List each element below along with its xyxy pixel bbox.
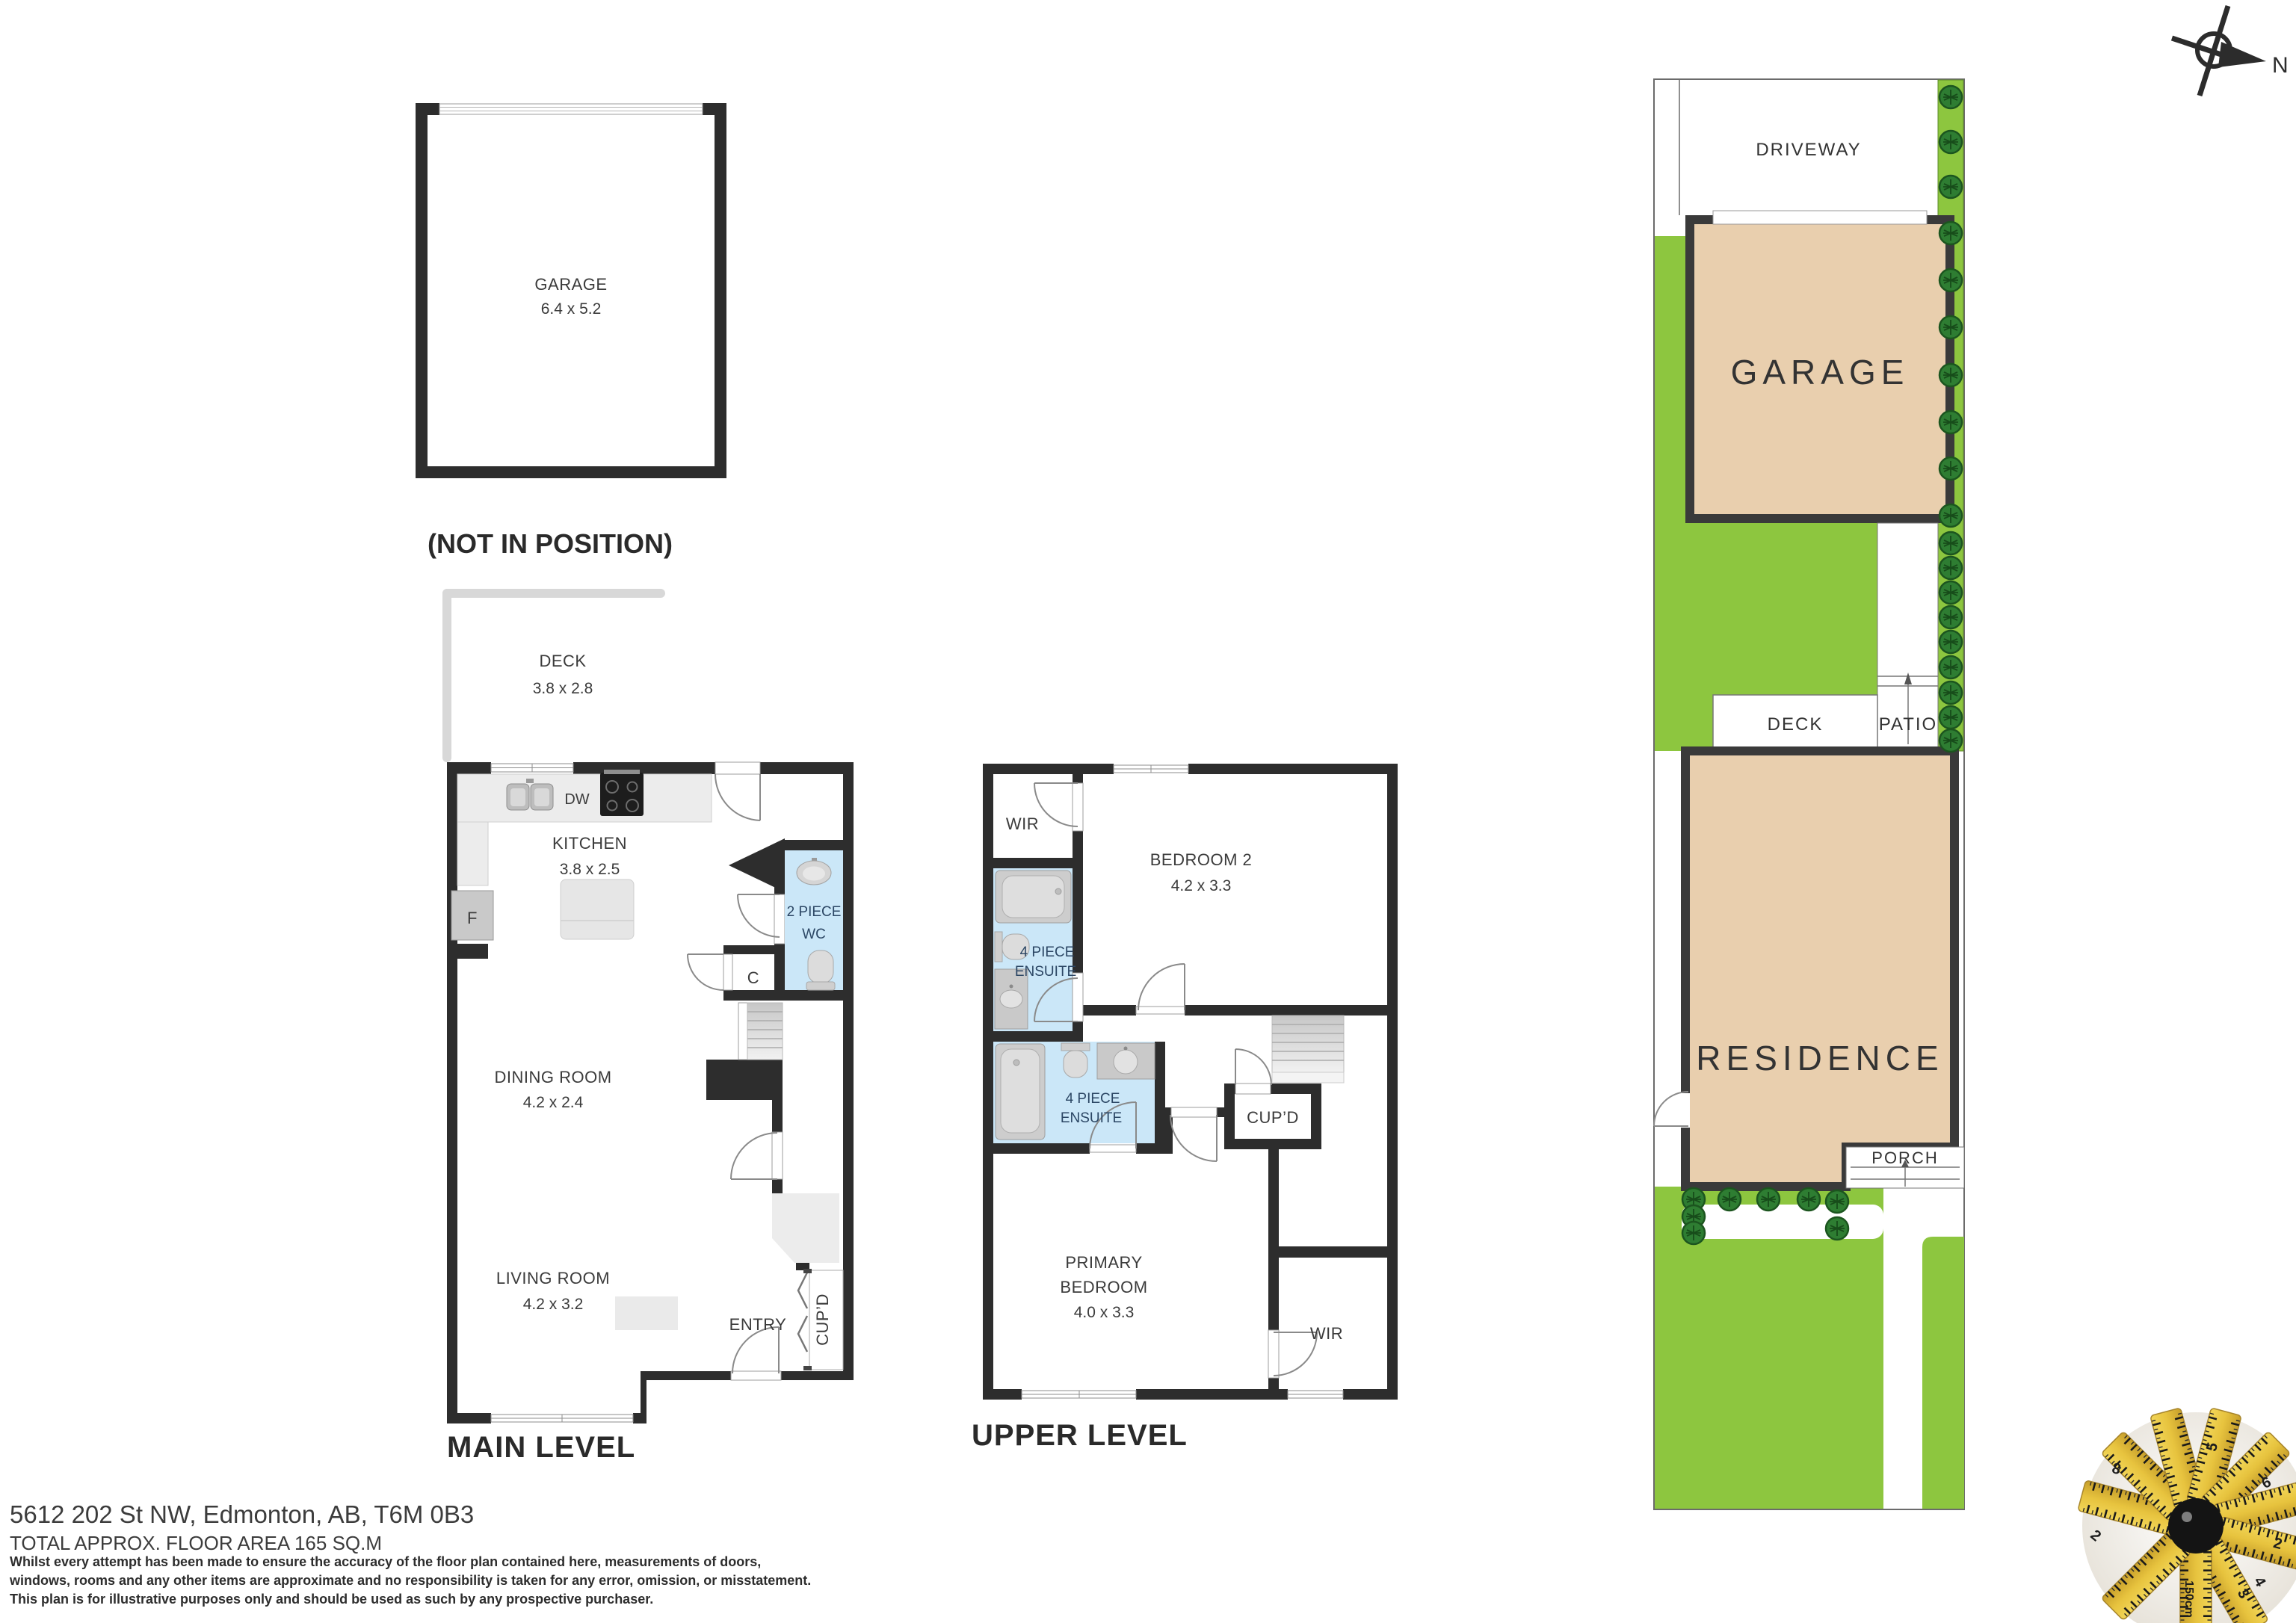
garage-door-band (439, 104, 703, 114)
floor-area-line: TOTAL APPROX. FLOOR AREA 165 SQ.M (10, 1532, 382, 1555)
fridge-label: F (467, 909, 478, 927)
bedroom2-label: BEDROOM 2 (1150, 850, 1253, 869)
ensuite1-label-1: 4 PIECE (1020, 945, 1075, 960)
primary-label-1: PRIMARY (1065, 1253, 1142, 1272)
upper-cupboard-label: CUP’D (1247, 1108, 1299, 1127)
wc-label-1: 2 PIECE (787, 904, 842, 920)
garage-note: (NOT IN POSITION) (428, 528, 673, 559)
wc-label-2: WC (802, 927, 826, 942)
entry-label: ENTRY (729, 1315, 787, 1334)
disclaimer-line-3: This plan is for illustrative purposes o… (10, 1592, 653, 1607)
living-dims: 4.2 x 3.2 (523, 1296, 584, 1313)
deck-label: DECK (539, 652, 586, 670)
primary-label-2: BEDROOM (1060, 1278, 1147, 1296)
tape-measure-logo: 8 2 6 5 2 3 4 150cm (2078, 1408, 2296, 1623)
upper-stairs (1272, 1015, 1344, 1083)
deck-dims: 3.8 x 2.8 (533, 680, 593, 697)
wc-toilet-icon (806, 950, 835, 990)
garage-plan-label: GARAGE (534, 275, 607, 294)
site-garage-label: GARAGE (1731, 353, 1910, 392)
ensuite2-tub-icon (996, 1044, 1045, 1140)
site-residence-label: RESIDENCE (1696, 1039, 1943, 1078)
site-porch-label: PORCH (1871, 1149, 1938, 1167)
garage-plan-dims: 6.4 x 5.2 (541, 300, 602, 318)
site-deck-label: DECK (1768, 714, 1824, 735)
main-level-title: MAIN LEVEL (447, 1431, 635, 1464)
dishwasher-label: DW (564, 791, 589, 808)
wir-top-label: WIR (1006, 814, 1039, 833)
ensuite2-label-2: ENSUITE (1061, 1110, 1122, 1126)
closet-label: C (747, 968, 759, 987)
disclaimer-line-2: windows, rooms and any other items are a… (10, 1573, 811, 1589)
living-label: LIVING ROOM (496, 1269, 610, 1287)
upper-level-title: UPPER LEVEL (972, 1419, 1188, 1452)
entry-landing (772, 1193, 839, 1263)
floorplan-drawing: N GARAGE 6.4 x 5.2 (NOT IN POSITION) DEC… (0, 0, 2296, 1623)
primary-dims: 4.0 x 3.3 (1074, 1304, 1135, 1321)
ensuite2-toilet-icon (1061, 1043, 1090, 1078)
kitchen-label: KITCHEN (552, 834, 627, 853)
site-driveway-label: DRIVEWAY (1756, 140, 1861, 160)
site-patio-label: PATIO (1879, 714, 1937, 735)
stove-icon (600, 770, 644, 816)
disclaimer-line-1: Whilst every attempt has been made to en… (10, 1554, 761, 1570)
main-level-plan: DECK 3.8 x 2.8 (442, 589, 854, 1464)
main-cupboard-label: CUP’D (813, 1293, 832, 1346)
ensuite2-label-1: 4 PIECE (1066, 1091, 1120, 1107)
compass-icon: N (2172, 6, 2289, 96)
upper-level-plan: 4 PIECE ENSUITE 4 PIECE ENSUITE (972, 764, 1398, 1452)
site-residence (1685, 751, 1954, 1187)
dining-dims: 4.2 x 2.4 (523, 1094, 584, 1111)
main-stairs (738, 1003, 783, 1060)
kitchen-dims: 3.8 x 2.5 (560, 861, 620, 878)
ensuite1-label-2: ENSUITE (1015, 964, 1076, 980)
site-garage-door (1713, 211, 1927, 224)
address-line: 5612 202 St NW, Edmonton, AB, T6M 0B3 (10, 1500, 474, 1529)
floorplan-page: N GARAGE 6.4 x 5.2 (NOT IN POSITION) DEC… (0, 0, 2296, 1623)
ensuite1-tub-icon (996, 871, 1071, 923)
site-plan: GARAGE DECK PATIO RESIDENCE PORCH DRIVEW… (1654, 79, 1964, 1509)
ensuite2-vanity-icon (1097, 1043, 1155, 1079)
svg-text:150cm: 150cm (2182, 1580, 2195, 1618)
bedroom2-dims: 4.2 x 3.3 (1171, 877, 1232, 894)
compass-north-label: N (2272, 53, 2289, 78)
living-niche (615, 1296, 678, 1330)
deck-outline (442, 589, 665, 762)
front-walkway (1682, 1205, 1883, 1239)
garage-plan: GARAGE 6.4 x 5.2 (NOT IN POSITION) (416, 103, 726, 559)
wir-bottom-label: WIR (1310, 1324, 1343, 1343)
dining-label: DINING ROOM (494, 1068, 611, 1086)
